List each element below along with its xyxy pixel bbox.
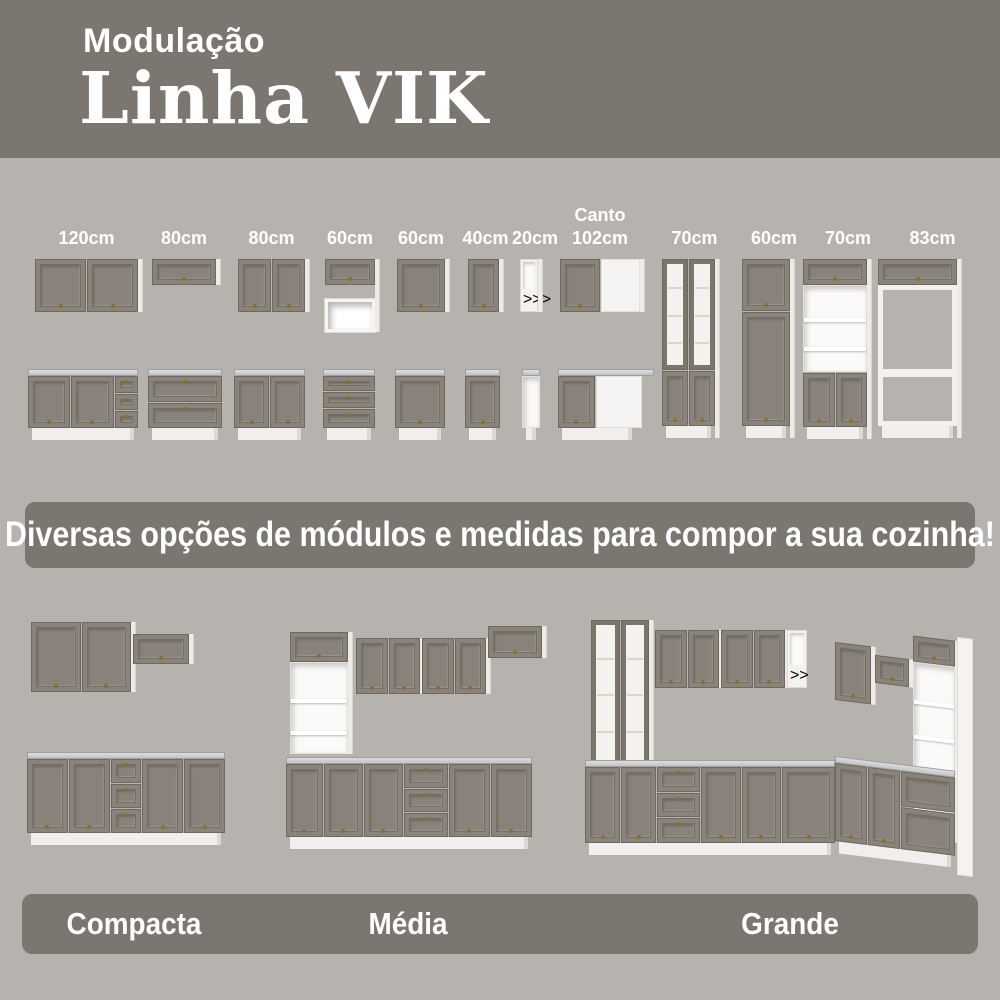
- module-tall-oven-tower: [803, 259, 867, 439]
- corner-right-run: [835, 614, 987, 895]
- module-wall-two-door: [35, 259, 138, 312]
- cabinet-door: [491, 764, 532, 837]
- door-knob: [418, 420, 422, 424]
- base-run: [585, 760, 835, 855]
- door-knob: [287, 304, 291, 308]
- base-run: [286, 757, 532, 849]
- door-panel: [473, 264, 494, 307]
- plinth: [882, 426, 953, 438]
- cabinet-drawer: [404, 764, 448, 788]
- module-base-two-door: [234, 369, 305, 440]
- door-knob: [916, 277, 920, 281]
- module-base-three-drawer: [323, 369, 375, 440]
- wall-cabinet: [356, 638, 420, 694]
- countertop: [148, 369, 222, 376]
- drawer-stack: [115, 376, 138, 428]
- door-knob: [719, 835, 723, 839]
- door-panel: [32, 764, 63, 828]
- module-wall-flip-door-plus-niche: [325, 259, 375, 332]
- end-panel: [957, 637, 973, 877]
- open-niche: [325, 299, 375, 332]
- door-panel: [873, 773, 895, 844]
- cabinet-door: [585, 767, 620, 843]
- base-run: [27, 752, 225, 845]
- door-knob: [513, 650, 517, 654]
- open-shelf-box: [522, 376, 540, 428]
- cabinet-door: [27, 759, 68, 833]
- door-panel: [394, 643, 416, 689]
- cabinet-door: [142, 759, 183, 833]
- door-knob: [317, 654, 321, 658]
- cabinet-door: [868, 767, 900, 849]
- door-knob: [159, 656, 163, 660]
- cabinet-door: [270, 376, 305, 428]
- cabinet-drawer: [115, 411, 138, 428]
- door-knob: [54, 684, 58, 688]
- drawer-knob: [347, 413, 351, 417]
- module-tall-open-frame: [878, 259, 957, 438]
- cabinet-door: [701, 767, 740, 843]
- cabinet-door: [389, 638, 421, 694]
- countertop: [465, 369, 500, 376]
- drawer-knob: [677, 797, 681, 801]
- cabinet-door: [803, 259, 867, 285]
- module-wall-one-door: [397, 259, 445, 312]
- module-size-value: 83cm: [909, 227, 955, 250]
- door-knob: [851, 694, 855, 698]
- door-knob: [161, 825, 165, 829]
- cabinet-door: [35, 259, 86, 312]
- cabinet-drawer: [111, 784, 141, 808]
- wall-flip-cabinet: [875, 655, 909, 687]
- module-base-one-door: [465, 369, 500, 440]
- door-panel: [840, 648, 866, 699]
- plinth: [399, 428, 441, 440]
- module-size-value: 60cm: [327, 227, 373, 250]
- cabinet-door: [69, 759, 110, 833]
- door-panel: [400, 381, 440, 423]
- door-knob: [436, 686, 440, 690]
- cabinet-door: [422, 638, 454, 694]
- door-knob: [468, 686, 472, 690]
- cabinet-door: [465, 376, 500, 428]
- module-size-label: 83cm: [909, 200, 955, 250]
- door-knob: [402, 686, 406, 690]
- module-size-label: 120cm: [58, 200, 114, 250]
- module-size-value: 70cm: [825, 227, 871, 250]
- door-knob: [47, 420, 51, 424]
- drawer-stack: [657, 767, 700, 843]
- drawer-knob: [424, 793, 428, 797]
- cabinet-door: [133, 634, 189, 664]
- open-shelf-box: [803, 285, 867, 372]
- drawer-knob: [183, 407, 187, 411]
- cabinet-drawer: [148, 376, 222, 402]
- module-base-one-door: [395, 369, 445, 440]
- open-shelf-box: [290, 662, 348, 754]
- door-knob: [882, 839, 886, 843]
- module-size-value: 60cm: [398, 227, 444, 250]
- label-media: Média: [368, 906, 447, 942]
- door-knob: [833, 277, 837, 281]
- kitchen-media-illustration: [278, 612, 538, 862]
- wall-cabinet: [721, 630, 785, 688]
- countertop: [522, 369, 540, 376]
- cabinet-door: [621, 767, 656, 843]
- door-panel: [706, 772, 735, 838]
- module-tall-glass-doors: [662, 259, 715, 438]
- door-knob: [767, 680, 771, 684]
- door-panel: [427, 643, 449, 689]
- tagline-text: Diversas opções de módulos e medidas par…: [5, 515, 995, 555]
- cabinet-drawer: [901, 771, 955, 813]
- cabinet-door: [688, 630, 720, 688]
- module-base-two-door-three-drawer: [28, 369, 138, 440]
- drawer-knob: [124, 398, 128, 402]
- cabinet-drawer: [657, 818, 700, 843]
- glass-door: [621, 620, 650, 768]
- module-size-value: 120cm: [58, 227, 114, 250]
- drawer-knob: [926, 778, 930, 782]
- plinth: [238, 428, 301, 440]
- glass-door: [591, 620, 620, 768]
- door-panel: [759, 635, 781, 683]
- cabinet-drawer: [901, 807, 955, 855]
- cabinet-door: [875, 655, 909, 687]
- plinth: [152, 428, 218, 440]
- module-size-label: Canto102cm: [572, 200, 628, 250]
- cabinet-drawer: [323, 376, 375, 391]
- door-knob: [59, 304, 63, 308]
- module-base-two-drawer: [148, 369, 222, 440]
- cabinet-door: [468, 259, 499, 312]
- drawer-stack: [404, 764, 448, 837]
- cabinet-door: [184, 759, 225, 833]
- module-size-label: 70cm: [671, 200, 717, 250]
- cabinet-door: [71, 376, 113, 428]
- door-knob: [87, 825, 91, 829]
- module-size-label: 60cm: [751, 200, 797, 250]
- plinth: [589, 843, 831, 855]
- kitchen-compacta-illustration: [25, 612, 240, 862]
- cabinet-door: [234, 376, 269, 428]
- door-panel: [277, 264, 300, 307]
- countertop: [27, 752, 225, 759]
- door-panel: [747, 264, 785, 306]
- plinth: [31, 833, 221, 845]
- cabinet-door: [754, 630, 786, 688]
- cabinet-drawer: [323, 409, 375, 428]
- module-tall-pantry: [742, 259, 790, 438]
- module-size-label: 20cm: [512, 200, 558, 250]
- cabinet-drawer: [111, 759, 141, 783]
- wall-flip-cabinet: [488, 626, 542, 658]
- cabinet-door: [655, 630, 687, 688]
- door-knob: [735, 680, 739, 684]
- door-knob: [45, 825, 49, 829]
- drawer-knob: [124, 763, 128, 767]
- door-panel: [496, 769, 527, 832]
- door-panel: [693, 635, 715, 683]
- door-knob: [481, 420, 485, 424]
- wall-cabinet: [655, 630, 719, 688]
- cabinet-door: [395, 376, 445, 428]
- door-panel: [626, 772, 651, 838]
- module-size-prefix: Canto: [575, 204, 626, 227]
- door-knob: [286, 420, 290, 424]
- door-knob: [932, 656, 936, 660]
- module-base-open: [522, 369, 540, 440]
- door-panel: [329, 769, 358, 832]
- module-size-value: 70cm: [671, 227, 717, 250]
- cabinet-drawer: [111, 809, 141, 833]
- door-panel: [76, 381, 108, 423]
- cabinet-door: [286, 764, 323, 837]
- door-knob: [182, 277, 186, 281]
- cabinet-door: [742, 767, 781, 843]
- door-panel: [470, 381, 495, 423]
- door-knob: [759, 835, 763, 839]
- module-size-value: 60cm: [751, 227, 797, 250]
- door-knob: [700, 418, 704, 422]
- module-size-label: 60cm: [327, 200, 373, 250]
- hot-tower: [290, 632, 348, 754]
- cabinet-door: [488, 626, 542, 658]
- door-knob: [637, 835, 641, 839]
- countertop: [558, 369, 654, 376]
- door-knob: [467, 829, 471, 833]
- door-knob: [890, 677, 894, 681]
- cabinet-drawer: [657, 793, 700, 818]
- door-panel: [243, 264, 266, 307]
- cabinet-door: [721, 630, 753, 688]
- module-size-label: 60cm: [398, 200, 444, 250]
- door-knob: [253, 304, 257, 308]
- door-knob: [701, 680, 705, 684]
- cabinet-door: [558, 376, 595, 428]
- door-knob: [817, 419, 821, 423]
- cabinet-door: [324, 764, 363, 837]
- cabinet-door: [662, 371, 688, 426]
- door-panel: [808, 378, 830, 422]
- cabinet-door: [31, 622, 81, 692]
- corner-return-panel: [601, 259, 640, 312]
- countertop: [323, 369, 375, 376]
- cabinet-door: [87, 259, 138, 312]
- door-knob: [104, 684, 108, 688]
- cabinet-drawer: [115, 376, 138, 393]
- door-knob: [341, 829, 345, 833]
- door-panel: [454, 769, 485, 832]
- plinth: [562, 428, 632, 440]
- cabinet-door: [272, 259, 305, 312]
- door-knob: [302, 829, 306, 833]
- door-panel: [460, 643, 482, 689]
- door-panel: [840, 769, 862, 840]
- door-panel: [147, 764, 178, 828]
- cabinet-door: [782, 767, 835, 843]
- module-size-label: 40cm: [462, 200, 508, 250]
- door-knob: [348, 277, 352, 281]
- module-size-value: 102cm: [572, 227, 628, 250]
- module-size-value: 20cm: [512, 227, 558, 250]
- cabinet-door: [836, 373, 868, 427]
- cabinet-door: [28, 376, 70, 428]
- door-knob: [764, 303, 768, 307]
- door-panel: [402, 264, 440, 307]
- cabinet-door: [742, 259, 790, 311]
- door-panel: [87, 627, 127, 687]
- plinth: [327, 428, 371, 440]
- plinth: [32, 428, 134, 440]
- glass-door: [662, 259, 688, 370]
- cabinet-door: [835, 763, 867, 845]
- wall-cabinet: [422, 638, 486, 694]
- cabinet-door: [803, 373, 835, 427]
- plinth: [526, 428, 536, 440]
- cabinet-door: [878, 259, 957, 285]
- cabinet-door: [689, 371, 715, 426]
- door-panel: [275, 381, 300, 423]
- countertop: [286, 757, 532, 764]
- module-size-label: 70cm: [825, 200, 871, 250]
- cabinet-drawer: [323, 392, 375, 407]
- cabinet-door: [364, 764, 403, 837]
- door-knob: [509, 829, 513, 833]
- door-knob: [574, 420, 578, 424]
- cabinet-drawer: [657, 767, 700, 792]
- door-panel: [563, 381, 590, 423]
- cabinet-door: [455, 638, 487, 694]
- drawer-knob: [926, 814, 930, 818]
- cabinet-door: [290, 632, 348, 662]
- cabinet-door: [356, 638, 388, 694]
- door-panel: [361, 643, 383, 689]
- door-panel: [36, 627, 76, 687]
- door-knob: [764, 418, 768, 422]
- kitchen-grande-illustration: >>: [583, 608, 988, 883]
- drawer-knob: [124, 788, 128, 792]
- corner-wall-cabinet: [835, 642, 871, 704]
- module-size-value: 80cm: [161, 227, 207, 250]
- cabinet-drawer: [404, 813, 448, 837]
- countertop: [395, 369, 445, 376]
- cabinet-drawer: [404, 789, 448, 813]
- tower-open-frame: [878, 285, 957, 426]
- door-knob: [381, 829, 385, 833]
- door-panel: [189, 764, 220, 828]
- drawer-stack: [111, 759, 141, 833]
- door-knob: [601, 835, 605, 839]
- drawer-knob: [347, 380, 351, 384]
- glass-tall-cabinet: [591, 620, 649, 768]
- cabinet-door: [152, 259, 216, 285]
- glass-door: [689, 259, 715, 370]
- cabinet-drawer: [148, 403, 222, 429]
- corner-blind-panel: [596, 376, 642, 428]
- door-knob: [849, 419, 853, 423]
- cabinet-door: [835, 642, 871, 704]
- drawer-knob: [677, 771, 681, 775]
- door-panel: [40, 264, 81, 307]
- door-panel: [726, 635, 748, 683]
- kitchen-names-band: Compacta Média Grande: [22, 894, 978, 954]
- door-panel: [590, 772, 615, 838]
- countertop: [234, 369, 305, 376]
- door-knob: [669, 680, 673, 684]
- plinth: [746, 426, 786, 438]
- door-panel: [92, 264, 133, 307]
- door-knob: [849, 835, 853, 839]
- open-cubby-column: >>>: [520, 259, 538, 312]
- door-knob: [419, 304, 423, 308]
- cabinet-door: [560, 259, 600, 312]
- open-shelf-unit: >>: [787, 630, 807, 688]
- door-panel: [565, 264, 595, 307]
- door-knob: [807, 835, 811, 839]
- countertop: [585, 760, 835, 767]
- plinth: [469, 428, 496, 440]
- tagline-banner: Diversas opções de módulos e medidas par…: [25, 502, 975, 568]
- door-panel: [747, 772, 776, 838]
- module-size-label: 80cm: [248, 200, 294, 250]
- door-panel: [369, 769, 398, 832]
- door-panel: [667, 376, 683, 421]
- drawer-knob: [183, 380, 187, 384]
- drawer-knob: [424, 768, 428, 772]
- cabinet-door: [397, 259, 445, 312]
- cabinet-door: [238, 259, 271, 312]
- module-corner-wall: [560, 259, 640, 312]
- door-panel: [239, 381, 264, 423]
- countertop: [28, 369, 138, 376]
- door-panel: [33, 381, 65, 423]
- label-grande: Grande: [741, 906, 839, 942]
- door-knob: [90, 420, 94, 424]
- door-panel: [291, 769, 318, 832]
- door-panel: [747, 317, 785, 421]
- door-panel: [74, 764, 105, 828]
- open-cubby-column: >>: [787, 630, 807, 688]
- cabinet-door: [449, 764, 490, 837]
- door-panel: [787, 772, 830, 838]
- module-size-value: 80cm: [248, 227, 294, 250]
- door-knob: [578, 304, 582, 308]
- door-panel: [694, 376, 710, 421]
- door-panel: [660, 635, 682, 683]
- base-run: [835, 756, 955, 868]
- module-wall-flip-door: [152, 259, 216, 285]
- drawer-knob: [124, 813, 128, 817]
- door-knob: [203, 825, 207, 829]
- door-panel: [841, 378, 863, 422]
- module-wall-one-door: [468, 259, 499, 312]
- module-size-value: 40cm: [462, 227, 508, 250]
- door-knob: [370, 686, 374, 690]
- cabinet-door: [82, 622, 132, 692]
- module-open-shelf-column: >>>: [520, 259, 538, 312]
- wall-cabinet: [31, 622, 131, 692]
- plinth: [807, 427, 863, 439]
- door-knob: [673, 418, 677, 422]
- cabinet-drawer: [115, 394, 138, 411]
- door-knob: [250, 420, 254, 424]
- wall-flip-cabinet: [133, 634, 189, 664]
- label-compacta: Compacta: [67, 906, 202, 942]
- cabinet-door: [742, 312, 790, 426]
- door-knob: [111, 304, 115, 308]
- plinth: [290, 837, 528, 849]
